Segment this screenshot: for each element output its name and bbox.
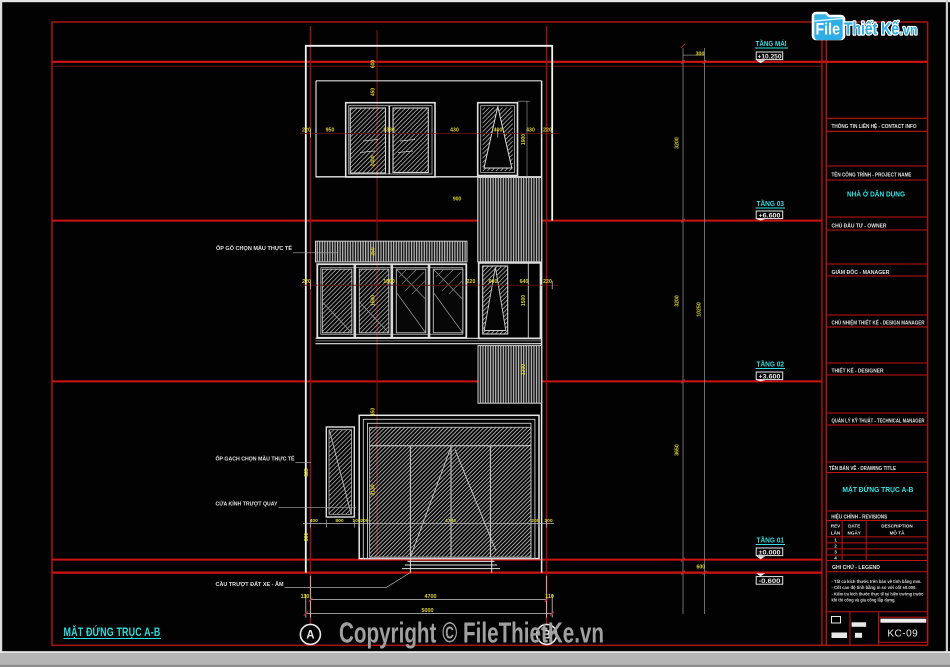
svg-text:+3.600: +3.600 [759,374,782,380]
svg-text:GHI CHÚ - LEGEND: GHI CHÚ - LEGEND [832,564,880,571]
svg-text:3130: 3130 [370,484,376,495]
svg-text:3650: 3650 [674,444,680,456]
svg-text:.vn: .vn [900,23,918,38]
svg-text:LẦN: LẦN [831,530,841,536]
svg-text:1500: 1500 [521,295,527,306]
svg-text:MẶT ĐỨNG TRỤC A-B: MẶT ĐỨNG TRỤC A-B [64,624,161,639]
svg-text:430: 430 [526,128,535,134]
svg-text:MẶT ĐỨNG TRỤC A-B: MẶT ĐỨNG TRỤC A-B [842,485,913,494]
svg-text:TÊN CÔNG TRÌNH - PROJECT NAME: TÊN CÔNG TRÌNH - PROJECT NAME [832,171,912,179]
svg-text:400: 400 [494,128,503,134]
svg-text:4700: 4700 [425,594,437,600]
svg-text:950: 950 [326,128,335,134]
svg-text:-0.600: -0.600 [759,579,782,585]
svg-text:TÊN BẢN VẼ - DRAWING TITLE: TÊN BẢN VẼ - DRAWING TITLE [829,464,896,472]
svg-text:640: 640 [520,279,529,285]
svg-text:2: 2 [834,544,837,549]
svg-text:110: 110 [545,594,554,600]
svg-text:CHỦ NHIỆM THIẾT KẾ - DESIGN MA: CHỦ NHIỆM THIẾT KẾ - DESIGN MANAGER [832,319,925,327]
svg-text:2400: 2400 [370,155,376,166]
svg-text:825: 825 [304,468,310,477]
svg-text:220: 220 [543,279,552,285]
svg-text:1: 1 [834,538,837,543]
svg-text:1300: 1300 [521,364,527,375]
svg-text:CẦU TRƯỢT ĐẤT XE - ÂM: CẦU TRƯỢT ĐẤT XE - ÂM [216,581,284,588]
svg-text:220: 220 [302,279,311,285]
svg-text:110: 110 [301,594,310,600]
svg-text:220: 220 [467,279,476,285]
svg-text:khi thi công và gia công lắp d: khi thi công và gia công lắp dựng. [832,597,896,603]
svg-text:600: 600 [370,60,376,69]
svg-text:- Tất cả kích thước trên bản v: - Tất cả kích thước trên bản vẽ tính bằn… [832,578,922,584]
svg-text:4: 4 [834,556,837,561]
svg-text:NHÀ Ở DÂN DỤNG: NHÀ Ở DÂN DỤNG [847,190,905,199]
svg-text:File: File [816,21,841,39]
svg-text:220: 220 [302,128,311,134]
svg-text:300: 300 [696,52,705,58]
svg-text:MÔ TẢ: MÔ TẢ [890,529,905,536]
svg-text:- Cốt cao độ tính bằng m so vớ: - Cốt cao độ tính bằng m so với cốt ±0.0… [832,584,917,590]
svg-text:TẦNG 01: TẦNG 01 [757,535,785,545]
svg-text:430: 430 [450,128,459,134]
svg-text:200: 200 [544,518,552,524]
svg-text:5000: 5000 [422,608,434,614]
svg-text:600: 600 [696,565,705,571]
svg-text:CHỦ ĐẦU TƯ - OWNER: CHỦ ĐẦU TƯ - OWNER [832,223,887,230]
svg-text:250: 250 [370,247,376,256]
svg-text:- Kiểm tra kích thước thực tế: - Kiểm tra kích thước thực tế tại hiện t… [832,590,924,596]
svg-text:640: 640 [489,279,498,285]
svg-text:1500: 1500 [370,295,376,306]
svg-text:REV: REV [831,524,841,529]
svg-text:+6.600: +6.600 [759,213,782,219]
svg-text:4730: 4730 [445,518,456,524]
svg-text:400: 400 [310,518,318,524]
svg-text:10250: 10250 [697,302,703,317]
svg-text:TẦNG 03: TẦNG 03 [757,198,785,208]
svg-text:THÔNG TIN LIÊN HỆ - CONTACT IN: THÔNG TIN LIÊN HỆ - CONTACT INFO [832,122,918,130]
svg-text:QUẢN LÝ KỸ THUẬT - TECHNICAL M: QUẢN LÝ KỸ THUẬT - TECHNICAL MANAGER [832,418,925,425]
svg-text:200: 200 [531,518,539,524]
svg-text:KC-09: KC-09 [887,629,918,640]
svg-text:900: 900 [453,197,462,203]
svg-text:ỐP GẠCH CHỌN MÀU THỰC TẾ: ỐP GẠCH CHỌN MÀU THỰC TẾ [216,456,295,463]
svg-text:A: A [306,630,314,642]
svg-text:300: 300 [304,533,310,542]
svg-text:3: 3 [834,550,837,555]
svg-text:1800: 1800 [383,279,395,285]
svg-text:HIỆU CHỈNH - REVISIONS: HIỆU CHỈNH - REVISIONS [831,513,887,521]
svg-text:ỐP GỖ CHỌN MÀU THỰC TẾ: ỐP GỖ CHỌN MÀU THỰC TẾ [216,245,292,252]
svg-text:THIẾT KẾ - DESIGNER: THIẾT KẾ - DESIGNER [832,368,884,375]
svg-text:Copyright © FileThietKe.vn: Copyright © FileThietKe.vn [339,617,604,649]
svg-text:TẦNG MÁI: TẦNG MÁI [756,38,787,48]
svg-text:DESCRIPTION: DESCRIPTION [881,524,913,529]
svg-text:3200: 3200 [674,295,680,307]
svg-text:220: 220 [543,128,552,134]
svg-text:GIÁM ĐỐC - MANAGER: GIÁM ĐỐC - MANAGER [832,269,890,276]
svg-text:1330: 1330 [383,128,395,134]
svg-text:3200: 3200 [674,137,680,149]
svg-text:1900: 1900 [521,134,527,145]
svg-text:NGÀY: NGÀY [848,530,861,536]
svg-text:800: 800 [335,518,343,524]
svg-text:CỬA KÍNH TRƯỢT QUAY: CỬA KÍNH TRƯỢT QUAY [216,500,278,508]
svg-text:Thiết Kế: Thiết Kế [844,19,899,39]
svg-text:+10.250: +10.250 [758,54,783,60]
svg-text:200: 200 [360,518,368,524]
svg-text:DATE: DATE [848,524,860,529]
svg-text:450: 450 [370,88,376,97]
svg-text:±0.000: ±0.000 [759,550,782,556]
svg-text:TẦNG 02: TẦNG 02 [757,359,785,369]
svg-text:450: 450 [370,408,376,417]
